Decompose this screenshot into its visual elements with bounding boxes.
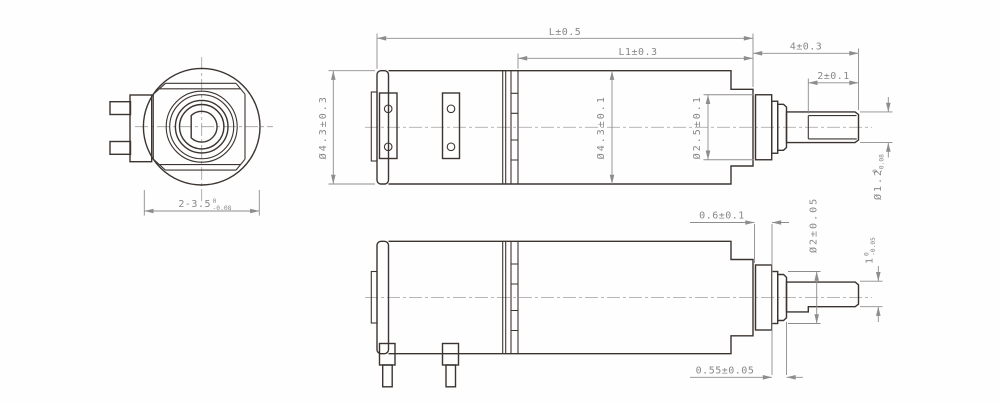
- shaft-bottom-with-flat: [787, 282, 859, 312]
- dim-shaft-flat-length: 2±0.1: [808, 71, 858, 114]
- dim-shaft-flat-height-label: 1: [864, 256, 875, 264]
- side-view-top: L±0.5 L1±0.3 4±0.3 2±0.1 Ø4.3±0.3: [317, 27, 893, 200]
- dim-shaft-flat-height-tol-lower: -0.05: [870, 237, 877, 256]
- dim-across-flats-label: 2-3.5: [178, 199, 211, 210]
- side-view-bottom: 0.6±0.1 0.55±0.05 Ø2±0.05 1 0 -0.05: [365, 197, 883, 387]
- dim-boss-length-label: 0.6±0.1: [699, 211, 745, 222]
- dim-collar-diameter: Ø2±0.05: [788, 197, 821, 324]
- dim-motor-diameter-label: Ø4.3±0.1: [595, 95, 607, 159]
- dim-gearbox-diameter-label: Ø4.3±0.3: [317, 95, 329, 159]
- dim-overall-length-label: L±0.5: [549, 27, 582, 38]
- engineering-drawing-page: 2-3.5 0 -0.08: [0, 0, 1000, 405]
- end-plate: [371, 92, 377, 161]
- dim-shaft-extension-label: 4±0.3: [790, 42, 823, 53]
- dim-collar-length: 0.55±0.05: [690, 322, 803, 377]
- dim-overall-length: L±0.5: [377, 27, 753, 87]
- dim-across-flats-tol-lower: -0.08: [213, 205, 232, 212]
- terminal-pin-top: [110, 102, 131, 115]
- front-view: 2-3.5 0 -0.08: [110, 57, 273, 216]
- dim-shaft-diameter: Ø1.2 0 -0.08: [860, 97, 893, 200]
- terminal-right: [443, 344, 459, 387]
- mount-hole: [447, 105, 455, 113]
- dim-shaft-flat-height: 1 0 -0.05: [860, 237, 883, 322]
- dim-shaft-diameter-tol-lower: -0.08: [878, 154, 885, 173]
- dim-boss-length: 0.6±0.1: [690, 211, 789, 376]
- dim-collar-length-label: 0.55±0.05: [696, 366, 755, 377]
- terminal-pin-bottom: [110, 142, 131, 155]
- mount-plate-middle: [443, 93, 460, 159]
- mount-hole: [447, 143, 455, 151]
- dim-across-flats-tol-upper: 0: [213, 198, 217, 205]
- dim-collar-diameter-label: Ø2±0.05: [807, 197, 819, 253]
- dim-shaft-flat-length-label: 2±0.1: [817, 71, 850, 82]
- gearmotor-drawing-svg: 2-3.5 0 -0.08: [0, 0, 1000, 405]
- terminal-block-front: [110, 95, 152, 162]
- dim-motor-length: L1±0.3: [518, 47, 753, 69]
- dim-motor-length-label: L1±0.3: [618, 47, 657, 58]
- terminal-left: [380, 344, 396, 387]
- dim-boss-diameter-label: Ø2.5±0.1: [691, 95, 703, 159]
